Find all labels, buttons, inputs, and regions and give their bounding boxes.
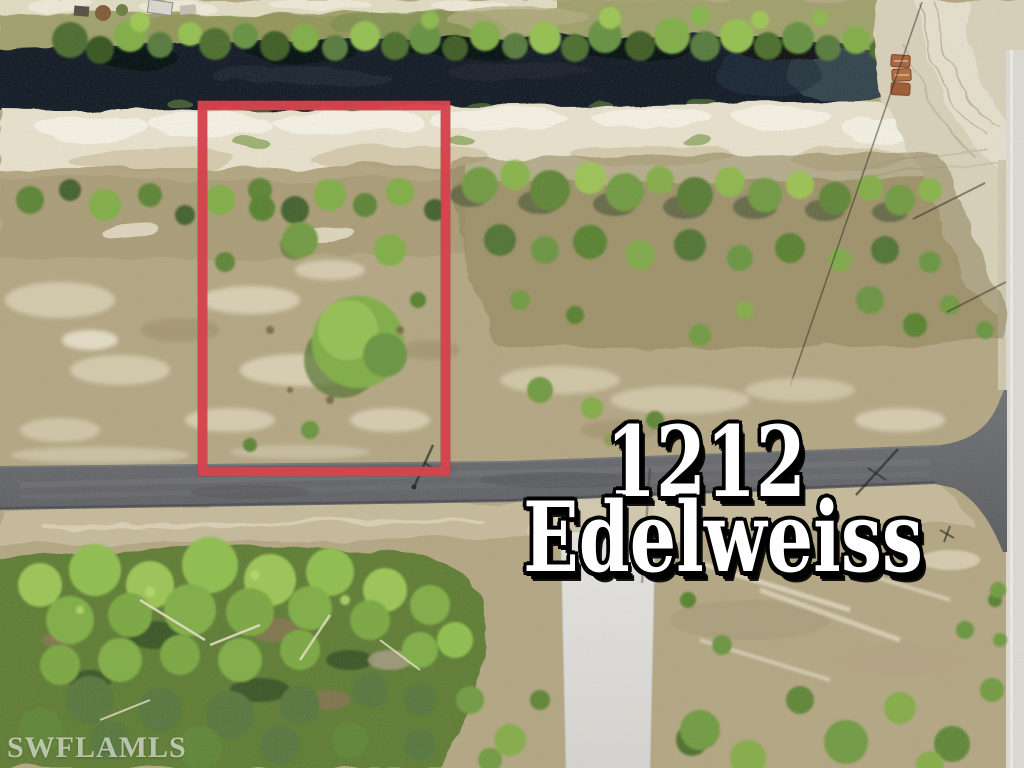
aerial-terrain (0, 0, 1024, 768)
aerial-photo: 1212 Edelweiss SWFLAMLS (0, 0, 1024, 768)
film-grain (0, 0, 1024, 768)
